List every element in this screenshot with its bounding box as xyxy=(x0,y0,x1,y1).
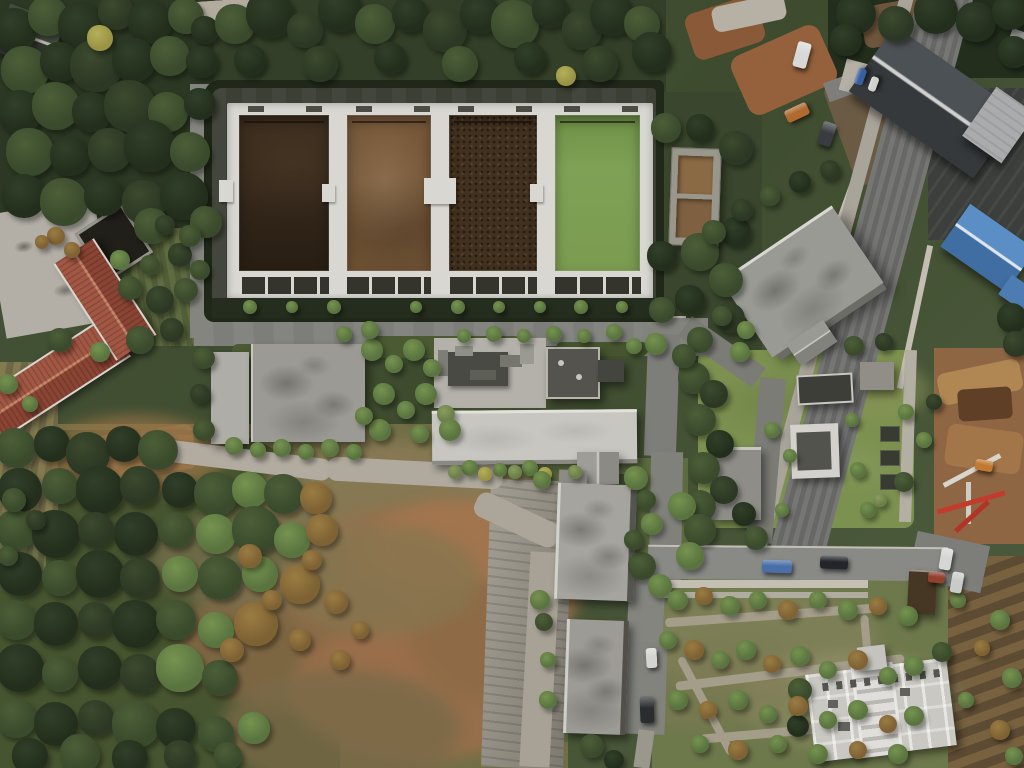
shrub xyxy=(351,621,369,639)
walkway-tab-center xyxy=(424,178,456,204)
shrub xyxy=(898,404,914,420)
upper-lawn-structure xyxy=(860,362,894,390)
tree xyxy=(997,303,1024,333)
shrub xyxy=(808,744,828,764)
shrub xyxy=(415,383,437,405)
solar-panel-1 xyxy=(880,426,900,442)
shrub xyxy=(699,701,717,719)
shrub xyxy=(916,432,932,448)
shrub xyxy=(624,530,644,550)
gate-tick xyxy=(306,106,322,112)
basin-1-dark-sludge xyxy=(239,115,329,271)
tree xyxy=(675,285,705,315)
shrub xyxy=(990,720,1010,740)
tree xyxy=(156,600,196,640)
shrub xyxy=(760,186,780,206)
shrub xyxy=(769,735,787,753)
shrub xyxy=(616,301,628,313)
shrub xyxy=(778,600,798,620)
tree xyxy=(624,466,648,490)
blower-annex-dark xyxy=(598,360,624,382)
tree xyxy=(651,113,681,143)
tree xyxy=(306,514,338,546)
tree xyxy=(647,241,677,271)
shrub xyxy=(879,715,897,733)
shrub xyxy=(1002,668,1022,688)
shrub xyxy=(788,696,808,716)
shrub xyxy=(534,301,546,313)
shrub xyxy=(958,692,974,708)
shrub xyxy=(410,301,422,313)
shrub xyxy=(879,667,897,685)
tree xyxy=(158,512,194,548)
shrub xyxy=(0,546,18,566)
shrub xyxy=(626,338,642,354)
shrub xyxy=(764,422,780,438)
basin-4-green-water xyxy=(555,115,640,271)
shrub xyxy=(355,407,373,425)
shrub xyxy=(533,471,551,489)
tree xyxy=(702,220,726,244)
tree xyxy=(40,178,88,226)
shrub xyxy=(845,413,859,427)
inlet-weir xyxy=(560,121,635,123)
shrub xyxy=(64,242,80,258)
shrub xyxy=(875,333,893,351)
shrub xyxy=(783,449,797,463)
tree xyxy=(2,488,26,512)
shrub xyxy=(759,705,777,723)
excavation-pit-east xyxy=(957,386,1013,422)
basin-2-brown-sludge xyxy=(347,115,431,271)
cell-divider xyxy=(431,277,449,294)
shrub xyxy=(1005,747,1023,765)
shrub xyxy=(932,642,952,662)
sludge-tank-cell-1 xyxy=(677,155,713,194)
tree xyxy=(42,468,78,504)
blower-building-vent-2 xyxy=(576,374,582,380)
shrub xyxy=(0,374,18,394)
shrub xyxy=(250,442,266,458)
shrub xyxy=(535,613,553,631)
planter-strip-1 xyxy=(660,580,868,588)
tree xyxy=(878,6,914,42)
cell-divider xyxy=(537,277,555,294)
shrub xyxy=(926,394,942,410)
tree xyxy=(956,2,996,42)
tree xyxy=(238,712,270,744)
tree xyxy=(580,734,604,758)
admin-building-main xyxy=(251,344,365,442)
tree xyxy=(355,4,395,44)
tree xyxy=(992,0,1024,30)
van-dark xyxy=(640,696,655,723)
gate-tick xyxy=(356,106,372,112)
inlet-weir xyxy=(352,121,426,123)
tree xyxy=(78,512,114,548)
shrub xyxy=(298,444,314,460)
pump-machinery-box-1 xyxy=(455,346,473,356)
lawn-pump-house-dark-center xyxy=(796,431,831,470)
tree xyxy=(632,32,672,72)
shrub xyxy=(286,301,298,313)
gate-tick xyxy=(414,106,430,112)
shrub xyxy=(974,640,990,656)
shrub xyxy=(775,503,789,517)
shrub xyxy=(273,439,291,457)
shrub xyxy=(844,336,864,356)
tree xyxy=(998,36,1024,68)
tree xyxy=(42,656,78,692)
shrub xyxy=(574,300,588,314)
tree xyxy=(162,472,198,508)
tree xyxy=(50,136,90,176)
inlet-weir xyxy=(454,121,531,123)
tree xyxy=(442,46,478,82)
shrub xyxy=(720,596,740,616)
pump-machinery-box-3 xyxy=(520,344,534,364)
south-building-2 xyxy=(563,619,629,735)
tree xyxy=(156,644,204,692)
lawn-building-dark-roof xyxy=(796,373,853,406)
gate-tick xyxy=(458,106,474,112)
shrub xyxy=(462,460,478,476)
shrub xyxy=(508,465,522,479)
tree xyxy=(744,526,768,550)
shrub xyxy=(850,462,866,478)
shrub xyxy=(486,326,502,342)
tree xyxy=(220,638,244,662)
shrub xyxy=(336,326,352,342)
tree xyxy=(300,482,332,514)
shrub xyxy=(451,300,465,314)
tree xyxy=(582,46,618,82)
shrub xyxy=(873,493,887,507)
shrub xyxy=(668,590,688,610)
tree xyxy=(324,590,348,614)
shrub xyxy=(848,650,868,670)
shrub xyxy=(641,513,663,535)
basin-3-crusted-sludge xyxy=(449,115,537,271)
tree xyxy=(150,36,190,76)
tree xyxy=(174,278,198,302)
tree xyxy=(106,426,142,462)
aerial-photo xyxy=(0,0,1024,768)
tree xyxy=(302,46,338,82)
shrub xyxy=(711,651,729,669)
shrub xyxy=(894,472,914,492)
tree xyxy=(719,131,753,165)
tree xyxy=(196,514,236,554)
shrub xyxy=(904,706,924,726)
tree xyxy=(1003,331,1024,357)
shrub xyxy=(731,199,753,221)
tree xyxy=(232,472,268,508)
tree xyxy=(6,128,54,176)
scaffold-window-1 xyxy=(828,700,838,708)
tree xyxy=(676,542,704,570)
shrub xyxy=(302,550,322,570)
car-white xyxy=(645,648,657,669)
shrub xyxy=(530,590,550,610)
shrub xyxy=(190,384,210,404)
shrub xyxy=(448,465,462,479)
tree xyxy=(138,430,178,470)
shrub xyxy=(790,646,810,666)
shrub xyxy=(243,300,257,314)
shrub xyxy=(478,467,492,481)
pump-machinery-pipe xyxy=(470,370,496,380)
shrub xyxy=(26,510,46,530)
shrub xyxy=(749,591,767,609)
shrub xyxy=(606,324,622,340)
shrub xyxy=(691,735,709,753)
shrub xyxy=(110,250,130,270)
shrub xyxy=(330,650,350,670)
shrub xyxy=(155,215,175,235)
tree xyxy=(709,263,743,297)
tree xyxy=(0,600,36,640)
tree xyxy=(12,738,48,768)
tree xyxy=(280,564,320,604)
tree xyxy=(162,556,198,592)
shrub xyxy=(636,490,656,510)
tree xyxy=(48,328,72,352)
shrub xyxy=(190,260,210,280)
shrub xyxy=(397,401,415,419)
tree xyxy=(202,660,238,696)
shrub xyxy=(385,355,403,373)
shrub xyxy=(869,597,887,615)
tree xyxy=(76,466,124,514)
tree xyxy=(214,742,242,768)
walkway-tab-west xyxy=(219,180,233,202)
tree xyxy=(120,654,160,694)
tree xyxy=(164,740,196,768)
gate-tick xyxy=(516,106,532,112)
shrub xyxy=(950,592,966,608)
tree xyxy=(0,428,36,468)
blower-building-dark-roof xyxy=(546,347,600,399)
tree xyxy=(78,700,114,736)
pump-machinery-box-2 xyxy=(500,355,522,367)
tree xyxy=(126,326,154,354)
shrub xyxy=(787,715,809,737)
shrub xyxy=(22,396,38,412)
tree xyxy=(686,114,714,142)
shrub xyxy=(321,439,339,457)
truck-red xyxy=(928,571,946,583)
tree xyxy=(84,176,124,216)
solar-panel-2 xyxy=(880,450,900,466)
shrub xyxy=(809,591,827,609)
shrub xyxy=(577,329,591,343)
tree xyxy=(146,286,174,314)
tree xyxy=(78,646,122,690)
shrub xyxy=(728,690,748,710)
excavator-orange xyxy=(783,102,810,124)
shrub xyxy=(346,444,362,460)
tree xyxy=(112,600,160,648)
car-dark xyxy=(820,556,848,570)
tree xyxy=(732,502,756,526)
tree xyxy=(184,88,216,120)
tree xyxy=(238,544,262,568)
shrub xyxy=(695,587,713,605)
shrub xyxy=(262,590,282,610)
tree xyxy=(234,44,266,76)
tree xyxy=(120,558,160,598)
shrub xyxy=(820,160,840,180)
shrub xyxy=(604,750,624,768)
shrub xyxy=(737,321,755,339)
gate-tick xyxy=(248,106,264,112)
shrub xyxy=(888,744,908,764)
shrub xyxy=(645,333,667,355)
shrub xyxy=(556,66,576,86)
shrub xyxy=(423,359,441,377)
gate-tick xyxy=(622,106,638,112)
shrub xyxy=(819,711,837,729)
shrub xyxy=(789,171,811,193)
tree xyxy=(374,42,406,74)
inlet-weir xyxy=(244,121,323,123)
plant-south-hedge-strip xyxy=(212,298,656,318)
shrub xyxy=(373,383,395,405)
shrub xyxy=(361,321,379,339)
tree xyxy=(287,12,323,48)
walkway-tab-2 xyxy=(530,184,543,202)
shrub xyxy=(898,606,918,626)
shrub xyxy=(684,640,704,660)
shrub xyxy=(225,437,243,455)
tree xyxy=(42,560,78,596)
shrub xyxy=(763,655,781,673)
shrub xyxy=(289,629,311,651)
tree xyxy=(649,297,675,323)
shrub xyxy=(568,465,582,479)
car-blue xyxy=(762,559,792,573)
shrub xyxy=(361,339,383,361)
tree xyxy=(830,24,862,56)
tree xyxy=(0,698,36,738)
tree xyxy=(34,602,78,646)
tree xyxy=(0,644,44,692)
tree xyxy=(34,426,70,462)
tree xyxy=(78,602,114,638)
shrub xyxy=(849,741,867,759)
shrub xyxy=(493,301,505,313)
shrub xyxy=(730,342,750,362)
shrub xyxy=(736,640,756,660)
shrub xyxy=(539,691,557,709)
tree xyxy=(60,734,100,768)
shrub xyxy=(457,329,471,343)
shrub xyxy=(35,235,49,249)
pump-machinery-main xyxy=(448,352,508,386)
shrub xyxy=(838,600,858,620)
shrub xyxy=(668,690,688,710)
tree xyxy=(198,556,242,600)
shrub xyxy=(904,656,924,676)
shrub xyxy=(193,347,215,369)
tree xyxy=(76,550,124,598)
scaffold-window-3 xyxy=(900,688,910,696)
shrub xyxy=(848,700,868,720)
blower-building-vent-1 xyxy=(558,360,564,366)
shrub xyxy=(90,342,110,362)
shrub xyxy=(411,425,429,443)
shrub xyxy=(659,631,677,649)
shrub xyxy=(179,225,201,247)
truck-dark xyxy=(817,120,838,147)
shrub xyxy=(193,419,215,441)
shrub xyxy=(369,419,391,441)
tree xyxy=(514,42,546,74)
tree xyxy=(160,318,184,342)
shrub xyxy=(493,463,507,477)
shrub xyxy=(140,255,160,275)
shrub xyxy=(546,326,562,342)
tree xyxy=(186,46,218,78)
shrub xyxy=(712,306,732,326)
shrub xyxy=(327,300,341,314)
shrub xyxy=(47,227,65,245)
shrub xyxy=(728,740,748,760)
gate-tick xyxy=(564,106,580,112)
shrub xyxy=(403,339,425,361)
admin-building-west-wing xyxy=(211,352,249,444)
tree xyxy=(118,276,142,300)
tree xyxy=(672,344,696,368)
tree xyxy=(114,512,158,556)
tree xyxy=(87,25,113,51)
tree xyxy=(170,132,210,172)
tree xyxy=(120,466,160,506)
cell-divider xyxy=(329,277,347,294)
scaffold-window-2 xyxy=(838,722,850,731)
shrub xyxy=(819,661,837,679)
shrub xyxy=(990,610,1010,630)
tree xyxy=(264,474,304,514)
shrub xyxy=(540,652,556,668)
tree xyxy=(124,120,176,172)
shrub xyxy=(439,419,461,441)
walkway-tab-1 xyxy=(322,184,335,202)
shrub xyxy=(517,329,531,343)
